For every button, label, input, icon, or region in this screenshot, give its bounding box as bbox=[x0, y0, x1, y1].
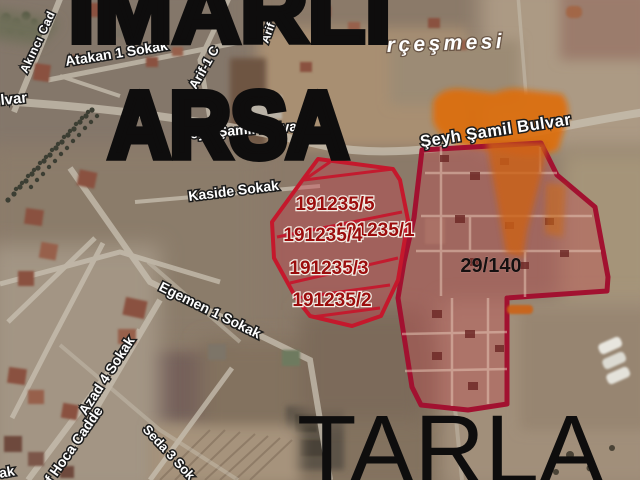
svg-text:191235/5: 191235/5 bbox=[295, 194, 375, 215]
svg-text:rçeşmesi: rçeşmesi bbox=[386, 30, 505, 57]
svg-text:191235/3: 191235/3 bbox=[289, 258, 368, 279]
svg-text:29/140: 29/140 bbox=[460, 255, 521, 277]
svg-text:191235/4: 191235/4 bbox=[283, 225, 363, 246]
svg-text:İMARLI: İMARLI bbox=[69, 0, 392, 61]
svg-text:lvar: lvar bbox=[0, 89, 28, 109]
svg-text:191235/2: 191235/2 bbox=[292, 290, 371, 311]
svg-text:ARSA: ARSA bbox=[109, 73, 348, 177]
svg-text:TARLA: TARLA bbox=[297, 395, 604, 480]
